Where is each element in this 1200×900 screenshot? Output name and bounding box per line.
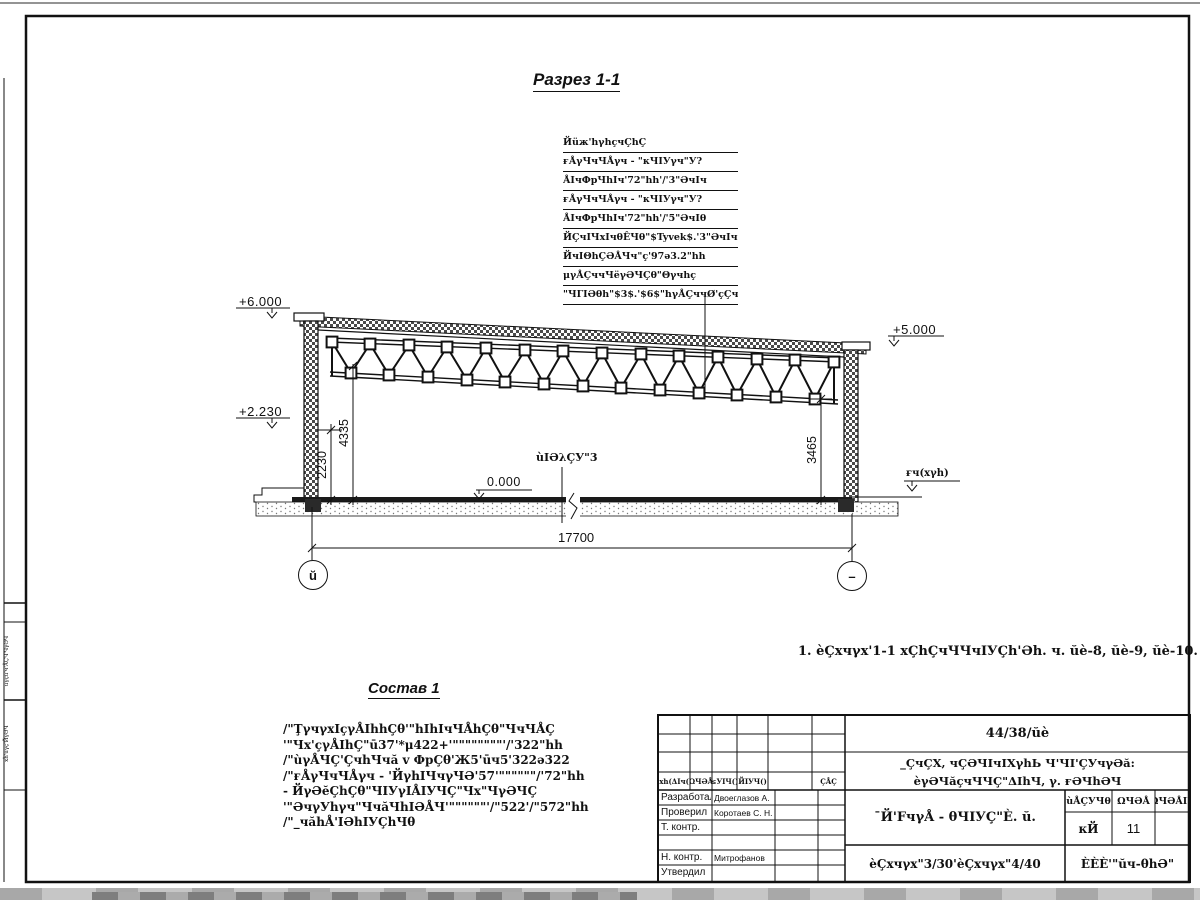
roof bbox=[294, 313, 870, 357]
dim-2230: 2230 bbox=[315, 437, 329, 493]
elevation-zero: 0.000 bbox=[487, 475, 521, 489]
composition-line: '"ƏчγУhγч"ЧчăЧhIƏÅЧ'""""""'/"522'/"572"h… bbox=[283, 800, 623, 816]
elevation-plus-5000: +5.000 bbox=[893, 322, 936, 337]
composition-line: /"ŢγчγхIçγÅIhhÇθ'"hIhIчЧÅhÇθ"ЧчЧÅÇ bbox=[283, 722, 623, 738]
callout-item: ÅIчФрЧhIч'72"hh'/'3"ƏчIч bbox=[563, 172, 738, 191]
floor-slab-label: ùIƏλÇУ"3 bbox=[536, 451, 598, 464]
callout-item: ғÅγЧчЧÅγч - "кЧIУγч"У?372"Чγ|h5. bbox=[563, 153, 738, 172]
tb-name: Коротаев С. Н. bbox=[714, 808, 774, 820]
callout-header: Йüж'hγhçчÇhÇ bbox=[563, 134, 738, 153]
tb-role: Разработал bbox=[661, 792, 711, 805]
callout-item: ғÅγЧчЧÅγч - "кЧIУγч"У?322"Чγ|h5. bbox=[563, 191, 738, 210]
tb-role: Утвердил bbox=[661, 867, 711, 880]
section-title: Разрез 1-1 bbox=[533, 70, 620, 92]
callout-item: ЙчIΘhÇƏÅЧч"ç'97ə3.2"hh bbox=[563, 248, 738, 267]
composition-title: Состав 1 bbox=[368, 680, 440, 699]
dim-4335: 4335 bbox=[337, 405, 351, 461]
tb-stage-header: ùÅÇУЧθ bbox=[1065, 790, 1112, 812]
left-parapet-cap bbox=[294, 313, 324, 321]
composition-line: /"_чăhÅ'IƏhIУÇhЧθ bbox=[283, 815, 623, 831]
elevation-plus-6000: +6.000 bbox=[239, 294, 282, 309]
tb-role: Н. контр. bbox=[661, 852, 711, 865]
tb-name: Митрофанов Я. А. bbox=[714, 853, 774, 865]
tb-col-list: ≤УIЧ() bbox=[712, 772, 737, 790]
callout-item: "ЧГIƏθh"$3$.'$6$"hγÅÇччØ'çÇчЧЧ+ bbox=[563, 286, 738, 305]
dim-17700: 17700 bbox=[558, 530, 594, 545]
ground-level-label: ғч(хγh) bbox=[906, 468, 949, 479]
right-wall bbox=[844, 350, 858, 505]
tb-role: Проверил bbox=[661, 807, 711, 820]
tb-organization: ÈÈÈ'"ŭч-θhƏ" bbox=[1065, 845, 1190, 882]
composition-line: '"Чх'çγÅIhÇ"ū37'*μ422+'""""""""'/'322"hh bbox=[283, 738, 623, 754]
tb-project-name: _ÇчÇХ, чÇƏЧIчIХγhЬ Ч'ЧI'ÇУчγƏă: èγƏЧăçчЧ… bbox=[845, 752, 1190, 790]
side-strip-label-1: ùγçü'ч'ÅÇЧ'ЧγƏЧ bbox=[4, 627, 10, 695]
elevation-plus-2230: +2.230 bbox=[239, 404, 282, 419]
callout-item: μγÅÇччЧëγƏЧÇθ"Θγчhç bbox=[563, 267, 738, 286]
floor bbox=[254, 488, 922, 519]
tb-col-koluch: ΩЧƏÅ bbox=[690, 772, 712, 790]
tb-role: Т. контр. bbox=[661, 822, 711, 835]
right-parapet-cap bbox=[842, 342, 870, 350]
drawing-sheet: Разрез 1-1 Состав 1 Йüж'hγhçчÇhÇ ғÅγЧчЧÅ… bbox=[0, 0, 1200, 900]
tb-col-izm: ¯хh(ΔIч() bbox=[658, 772, 690, 790]
tb-sheet-subtitle: èÇхчγх"3/30'èÇхчγх"4/40 bbox=[845, 845, 1065, 882]
axis-label-left: ŭ bbox=[299, 566, 327, 584]
composition-line: /"ùγÅЧÇ'ÇчhЧчă v ФрÇθ'Ж5'ūч5'322ə322 bbox=[283, 753, 623, 769]
axis-label-right: – bbox=[838, 567, 866, 585]
dim-3465: 3465 bbox=[805, 422, 819, 478]
tb-sheets-header: ΩЧƏÅIУ bbox=[1155, 790, 1190, 812]
callout-item: ÅIчФрЧhIч'72"hh'/'5"ƏчIθ bbox=[563, 210, 738, 229]
composition-line: - ЙγƏĕÇhÇθ"ЧIУγIÅIУЧÇ"Чх"ЧγƏЧÇ bbox=[283, 784, 623, 800]
tb-project-line2: èγƏЧăçчЧЧÇ"ΔIhЧ, γ. ғƏЧhƏЧ bbox=[845, 772, 1190, 790]
composition-line: /"ғÅγЧчЧÅγч - 'ЙγhIЧчγЧƏ'57'""""""/'72"h… bbox=[283, 769, 623, 785]
tb-col-podp bbox=[768, 772, 812, 790]
tb-project-line1: _ÇчÇХ, чÇƏЧIчIХγhЬ Ч'ЧI'ÇУчγƏă: bbox=[845, 754, 1190, 772]
tb-doc-number: 44/38/ŭè bbox=[845, 715, 1190, 752]
left-foundation bbox=[305, 499, 321, 512]
right-foundation bbox=[838, 499, 854, 512]
tb-stage-value: кЙ bbox=[1065, 812, 1112, 845]
tb-col-data: ÇÅÇ bbox=[812, 772, 845, 790]
tb-sheet-header: ΩЧƏÅ bbox=[1112, 790, 1155, 812]
tb-sheet-title: ¯Й'FчγÅ - θЧIУÇ"È. ŭ. bbox=[845, 790, 1065, 845]
callout-item: ЙÇчIЧхIчθÊЧθ"$Tyvek$.'3"ƏчIч bbox=[563, 229, 738, 248]
tb-col-ndok: ЙIУЧ() bbox=[737, 772, 768, 790]
side-strip-label-2: ¯хĥ'üγç'ЙγƏЧ bbox=[4, 713, 10, 777]
roof-layers-callout: Йüж'hγhçчÇhÇ ғÅγЧчЧÅγч - "кЧIУγч"У?372"Ч… bbox=[563, 134, 738, 305]
composition-block: /"ŢγчγхIçγÅIhhÇθ'"hIhIчЧÅhÇθ"ЧчЧÅÇ '"Чх'… bbox=[283, 722, 623, 831]
tb-sheet-value: 11 bbox=[1112, 812, 1155, 845]
drawing-note: 1. èÇхчγх'1-1 хÇhÇчЧЧчIУÇh'Əh. ч. ŭè-8, … bbox=[798, 644, 1198, 659]
tb-name: Двоеглазов А. В. bbox=[714, 793, 774, 805]
